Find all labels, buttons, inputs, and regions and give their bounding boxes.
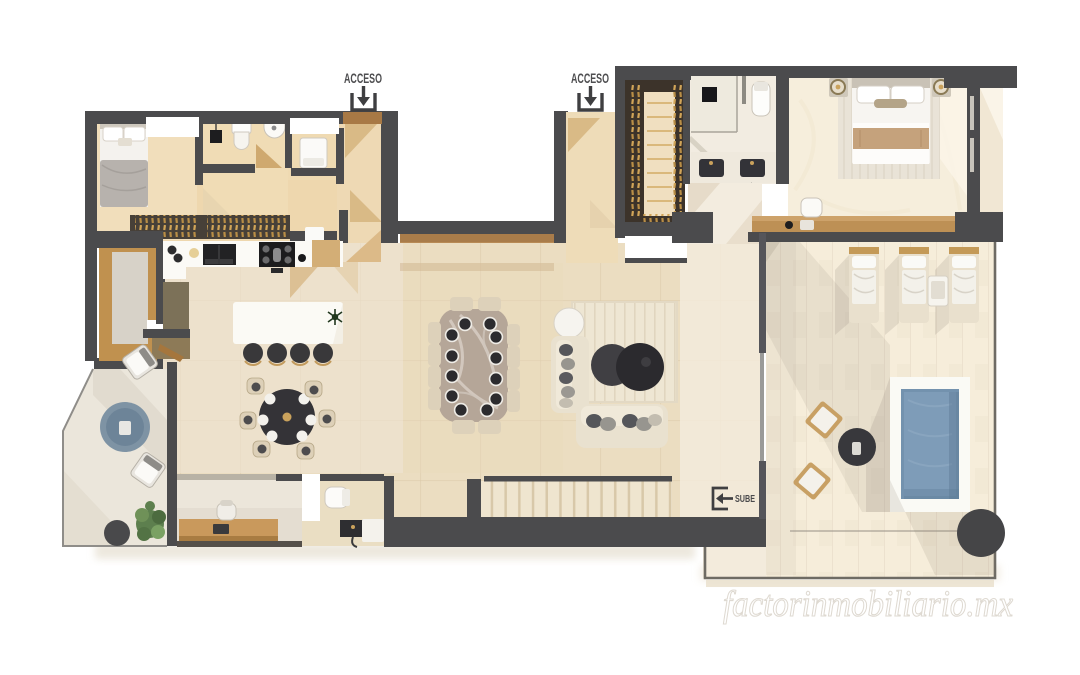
svg-text:factorinmobiliario.mx: factorinmobiliario.mx	[723, 584, 1014, 625]
svg-text:ACCESO: ACCESO	[571, 70, 609, 86]
svg-text:ACCESO: ACCESO	[344, 70, 382, 86]
svg-text:SUBE: SUBE	[735, 494, 755, 505]
